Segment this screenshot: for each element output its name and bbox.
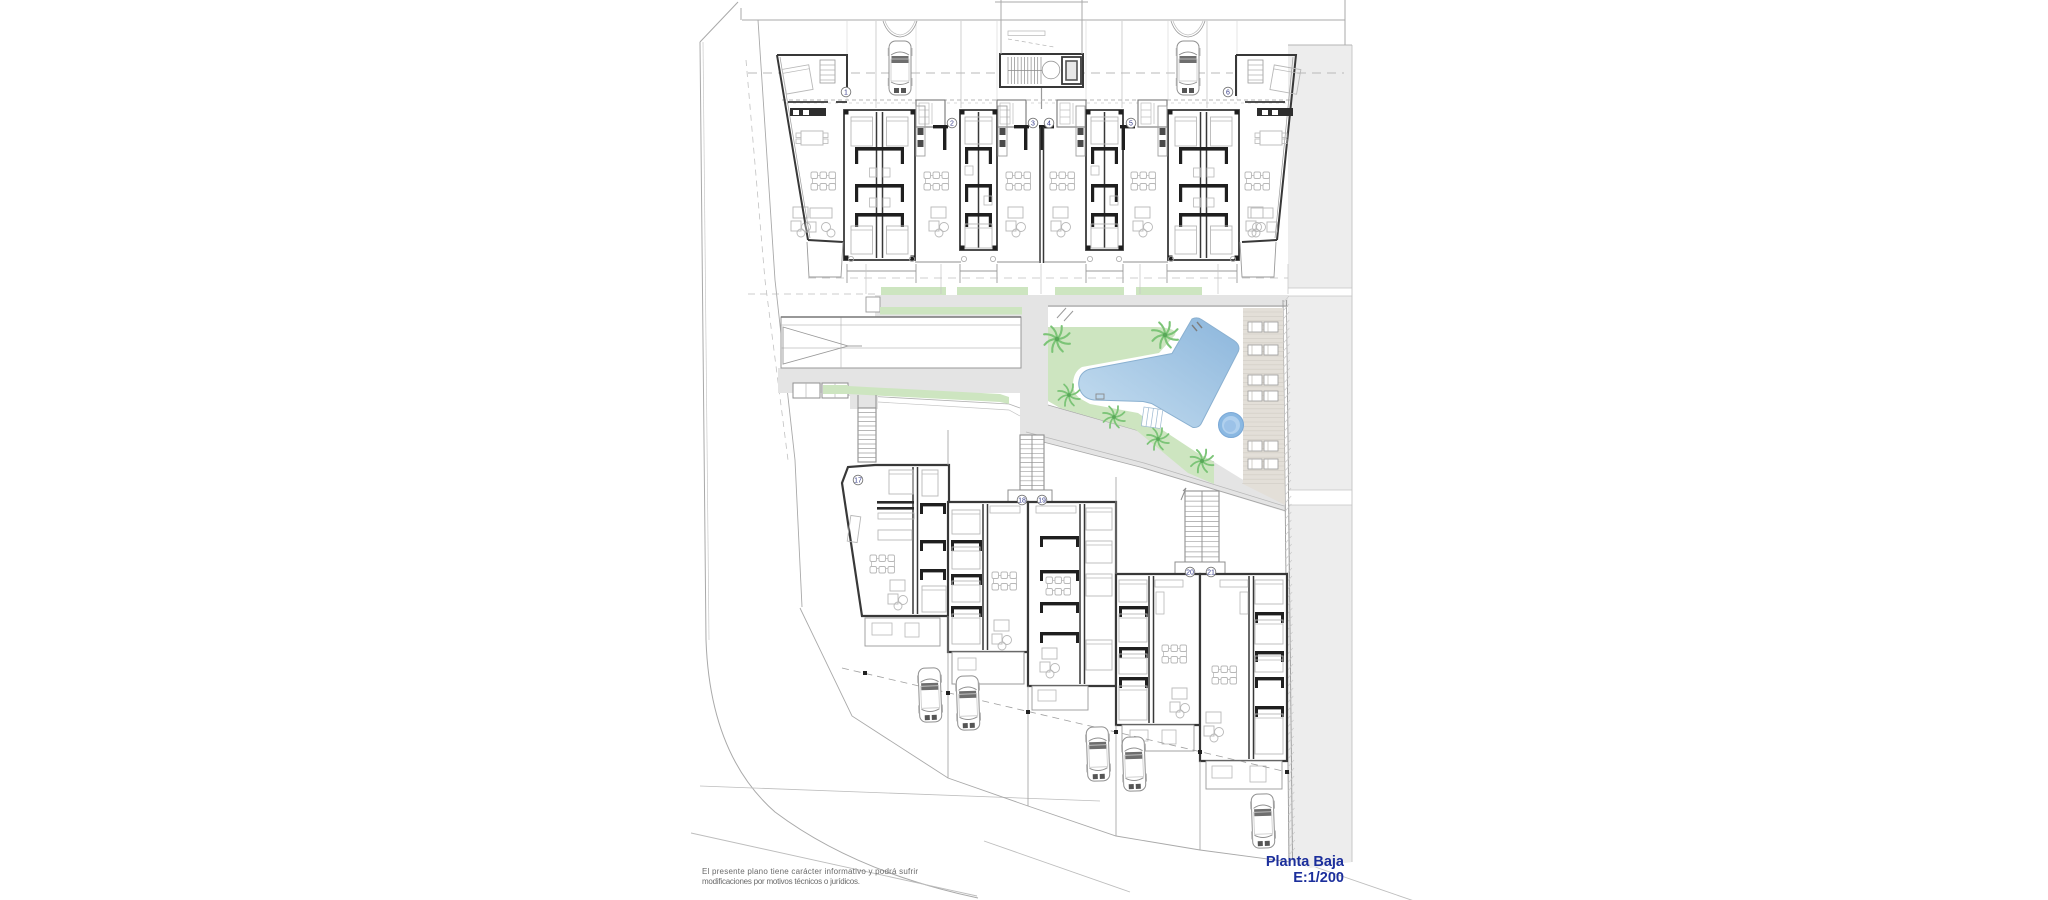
svg-text:19: 19 xyxy=(1038,497,1046,504)
svg-text:21: 21 xyxy=(1207,569,1215,576)
svg-text:20: 20 xyxy=(1186,569,1194,576)
svg-text:E:1/200: E:1/200 xyxy=(1293,870,1344,886)
svg-text:3: 3 xyxy=(1031,120,1035,127)
svg-text:modificaciones por motivos téc: modificaciones por motivos técnicos o ju… xyxy=(702,877,860,886)
svg-text:El presente plano tiene caráct: El presente plano tiene carácter informa… xyxy=(702,867,918,876)
svg-text:18: 18 xyxy=(1018,497,1026,504)
svg-text:6: 6 xyxy=(1226,89,1230,96)
svg-text:4: 4 xyxy=(1047,120,1051,127)
svg-text:Planta Baja: Planta Baja xyxy=(1266,854,1345,870)
svg-text:2: 2 xyxy=(950,120,954,127)
svg-text:17: 17 xyxy=(854,477,862,484)
svg-text:5: 5 xyxy=(1129,120,1133,127)
svg-text:1: 1 xyxy=(844,89,848,96)
